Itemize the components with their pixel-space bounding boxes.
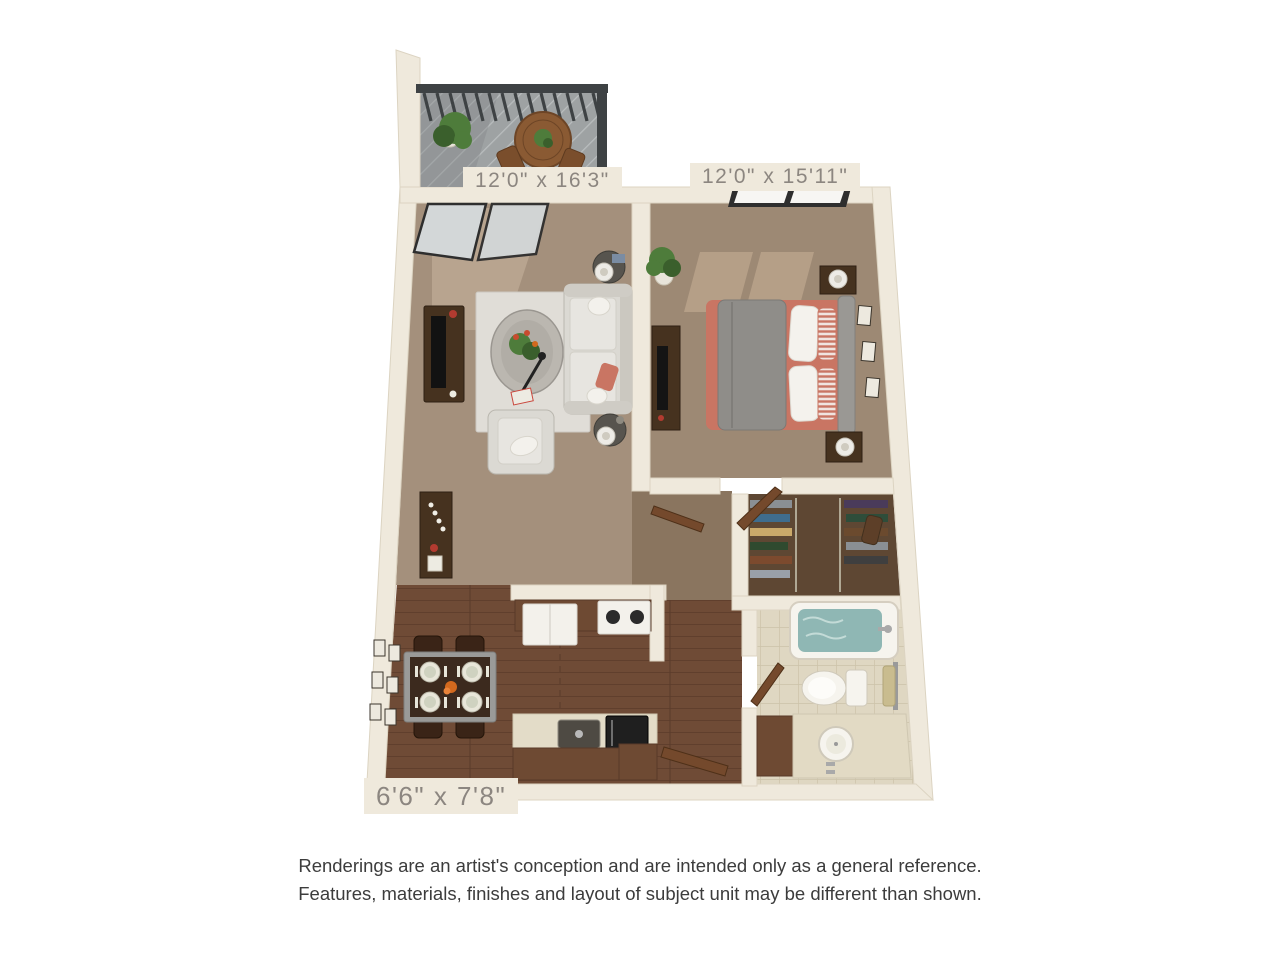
- bed-pillow: [789, 365, 820, 421]
- floorplan-rendering: [0, 0, 1280, 960]
- side-table-bottom: [594, 414, 626, 446]
- tv-console: [424, 306, 464, 402]
- picture-frame: [865, 378, 880, 398]
- nightstand-bottom: [826, 432, 862, 462]
- dining-table: [404, 652, 496, 722]
- picture-frame: [387, 677, 398, 693]
- sofa: [564, 284, 632, 414]
- bed-headboard: [838, 296, 855, 434]
- vanity-cabinet: [757, 716, 793, 776]
- balcony-left-wall: [396, 50, 420, 187]
- decor-books: [612, 254, 625, 263]
- vanity: [757, 714, 911, 778]
- floorplan-page: 12'0" x 16'3" 12'0" x 15'11" 6'6" x 7'8"…: [0, 0, 1280, 960]
- dresser: [652, 326, 680, 430]
- bathtub-water: [798, 609, 882, 652]
- refrigerator: [523, 604, 577, 645]
- picture-frame: [385, 709, 396, 725]
- picture-frame: [861, 342, 876, 362]
- bed: [706, 296, 855, 434]
- wall-kitchen-right: [650, 585, 664, 661]
- room-dimension-label-kitchen-dining: 6'6" x 7'8": [364, 778, 518, 814]
- decor-dish: [428, 556, 442, 571]
- decor-flower: [430, 544, 438, 552]
- wall-bathroom-left-upper: [742, 610, 757, 656]
- kitchen-counter-bottom-run: [513, 714, 657, 780]
- towel: [883, 666, 895, 706]
- stove: [598, 601, 650, 634]
- wall-hall-closet-divider: [732, 494, 748, 600]
- nightstand-top: [820, 266, 856, 294]
- bedroom-dimensions: 12'0" x 15'11": [702, 165, 848, 189]
- picture-frame: [372, 672, 383, 688]
- decor-vase: [449, 310, 457, 318]
- sofa-pillow: [588, 297, 610, 315]
- bed-pillow: [788, 305, 820, 362]
- wall-bedroom-bottom-right: [782, 478, 894, 494]
- picture-frame: [370, 704, 381, 720]
- bedroom-tv: [657, 346, 668, 410]
- balcony-railing-top: [416, 84, 608, 93]
- armchair: [488, 410, 554, 474]
- picture-frame: [389, 645, 400, 661]
- picture-frame: [857, 306, 872, 326]
- wall-bathroom-left-lower: [742, 708, 757, 786]
- wall-kitchen-top: [511, 585, 666, 600]
- disclaimer-line-1: Renderings are an artist's conception an…: [0, 852, 1280, 880]
- sideboard: [420, 492, 452, 578]
- kitchen-dining-dimensions: 6'6" x 7'8": [376, 781, 506, 812]
- kitchen-faucet: [575, 730, 583, 738]
- room-dimension-label-bedroom: 12'0" x 15'11": [690, 163, 860, 191]
- side-table-top: [593, 251, 625, 283]
- living-room-dimensions: 12'0" x 16'3": [475, 169, 610, 193]
- towel-bar: [883, 662, 898, 710]
- toilet: [802, 670, 867, 706]
- wall-living-bedroom-divider: [632, 203, 650, 491]
- disclaimer-line-2: Features, materials, finishes and layout…: [0, 880, 1280, 908]
- bed-duvet: [718, 300, 786, 430]
- hallway-floor: [632, 491, 732, 600]
- disclaimer: Renderings are an artist's conception an…: [0, 852, 1280, 908]
- bed-pillow-striped: [818, 308, 836, 360]
- room-dimension-label-living: 12'0" x 16'3": [463, 167, 622, 195]
- vanity-faucet: [826, 762, 835, 766]
- tv: [431, 316, 446, 388]
- picture-frame: [374, 640, 385, 656]
- sofa-pillow: [587, 388, 607, 404]
- bathtub: [790, 602, 898, 659]
- wall-bedroom-bottom-left: [650, 478, 720, 494]
- toilet-tank: [846, 670, 867, 706]
- bed-pillow-striped: [818, 368, 836, 420]
